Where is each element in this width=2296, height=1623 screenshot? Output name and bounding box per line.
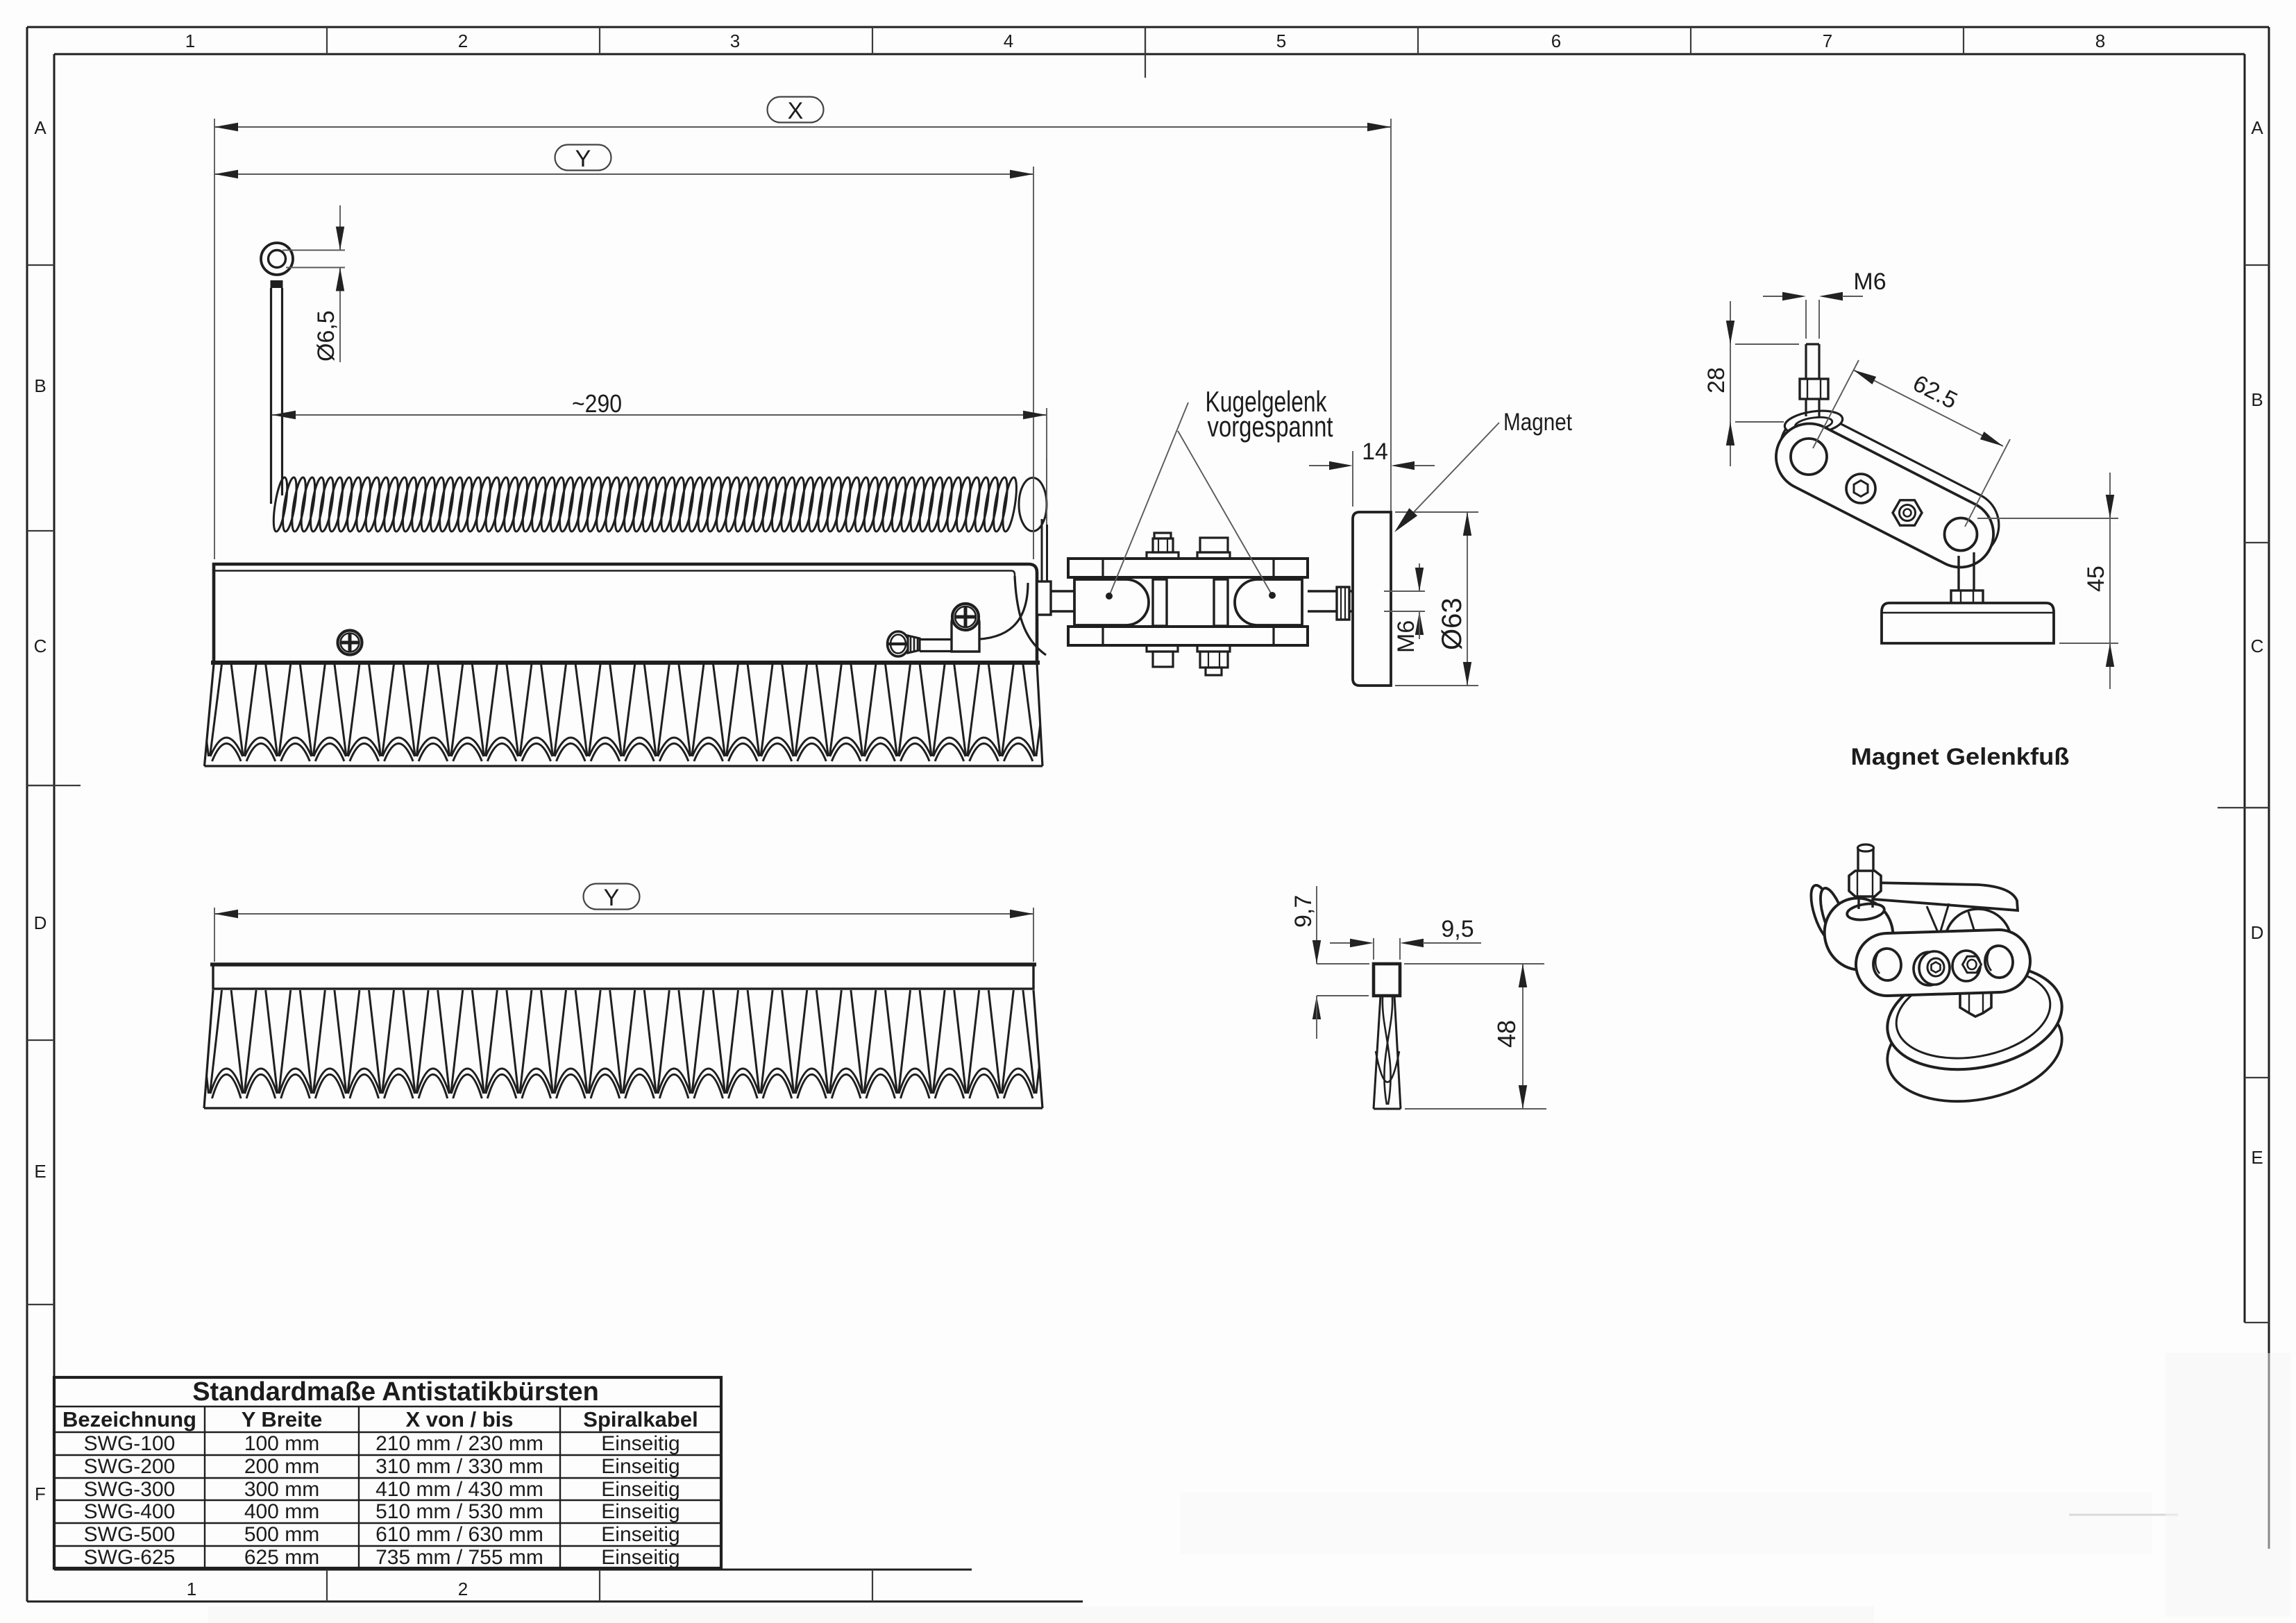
svg-text:Spiralkabel: Spiralkabel — [583, 1407, 698, 1431]
svg-text:Y Breite: Y Breite — [242, 1407, 323, 1431]
svg-text:Y: Y — [604, 885, 620, 911]
svg-text:M6: M6 — [1393, 620, 1419, 653]
svg-text:Einseitig: Einseitig — [601, 1546, 679, 1569]
svg-text:8: 8 — [2095, 31, 2105, 51]
svg-text:SWG-300: SWG-300 — [84, 1478, 176, 1501]
svg-text:Einseitig: Einseitig — [601, 1500, 679, 1523]
svg-text:B: B — [34, 375, 46, 396]
svg-text:28: 28 — [1703, 367, 1730, 393]
svg-text:2: 2 — [458, 31, 468, 51]
svg-text:9,7: 9,7 — [1290, 895, 1317, 928]
svg-text:Einseitig: Einseitig — [601, 1523, 679, 1546]
svg-text:400 mm: 400 mm — [244, 1500, 319, 1523]
svg-text:1: 1 — [185, 31, 195, 51]
svg-text:C: C — [34, 636, 47, 656]
svg-text:X: X — [788, 98, 804, 124]
svg-text:9,5: 9,5 — [1441, 916, 1474, 942]
svg-text:Magnet: Magnet — [1503, 409, 1572, 436]
svg-text:Y: Y — [575, 146, 591, 172]
svg-text:X von / bis: X von / bis — [405, 1407, 513, 1431]
svg-text:~290: ~290 — [572, 389, 622, 418]
svg-text:1: 1 — [187, 1579, 196, 1599]
svg-text:Bezeichnung: Bezeichnung — [62, 1407, 196, 1431]
svg-text:4: 4 — [1004, 31, 1013, 51]
svg-text:C: C — [2251, 636, 2264, 656]
svg-text:6: 6 — [1551, 31, 1561, 51]
svg-text:E: E — [34, 1161, 46, 1182]
svg-text:510 mm / 530 mm: 510 mm / 530 mm — [375, 1500, 543, 1523]
svg-text:Standardmaße Antistatikbürsten: Standardmaße Antistatikbürsten — [192, 1377, 599, 1407]
svg-text:SWG-100: SWG-100 — [84, 1432, 176, 1455]
svg-text:Einseitig: Einseitig — [601, 1432, 679, 1455]
svg-text:48: 48 — [1492, 1020, 1521, 1048]
svg-text:Magnet Gelenkfuß: Magnet Gelenkfuß — [1851, 744, 2070, 770]
svg-text:E: E — [2251, 1147, 2263, 1168]
svg-text:vorgespannt: vorgespannt — [1208, 410, 1333, 443]
svg-text:3: 3 — [730, 31, 740, 51]
svg-text:A: A — [2251, 117, 2263, 138]
svg-text:7: 7 — [1823, 31, 1832, 51]
svg-text:M6: M6 — [1853, 269, 1886, 295]
svg-text:2: 2 — [458, 1579, 468, 1599]
svg-text:Ø6,5: Ø6,5 — [313, 310, 339, 362]
svg-text:SWG-500: SWG-500 — [84, 1523, 176, 1546]
svg-text:D: D — [2251, 922, 2264, 943]
svg-text:625 mm: 625 mm — [244, 1546, 319, 1569]
svg-text:735 mm / 755 mm: 735 mm / 755 mm — [375, 1546, 543, 1569]
svg-text:Einseitig: Einseitig — [601, 1478, 679, 1501]
svg-text:D: D — [34, 912, 47, 933]
svg-text:45: 45 — [2083, 566, 2109, 592]
svg-text:500 mm: 500 mm — [244, 1523, 319, 1546]
svg-text:F: F — [35, 1484, 46, 1504]
svg-text:5: 5 — [1276, 31, 1286, 51]
svg-text:100 mm: 100 mm — [244, 1432, 319, 1455]
svg-text:SWG-200: SWG-200 — [84, 1455, 176, 1478]
svg-text:SWG-625: SWG-625 — [84, 1546, 176, 1569]
svg-text:610 mm / 630 mm: 610 mm / 630 mm — [375, 1523, 543, 1546]
svg-text:310 mm / 330 mm: 310 mm / 330 mm — [375, 1455, 543, 1478]
svg-text:A: A — [34, 117, 47, 138]
svg-text:Ø63: Ø63 — [1437, 597, 1467, 650]
svg-text:300 mm: 300 mm — [244, 1478, 319, 1501]
svg-text:410 mm / 430 mm: 410 mm / 430 mm — [375, 1478, 543, 1501]
svg-text:Einseitig: Einseitig — [601, 1455, 679, 1478]
svg-text:14: 14 — [1362, 439, 1388, 465]
svg-text:SWG-400: SWG-400 — [84, 1500, 176, 1523]
svg-text:200 mm: 200 mm — [244, 1455, 319, 1478]
svg-text:B: B — [2251, 389, 2263, 410]
svg-text:210 mm / 230 mm: 210 mm / 230 mm — [375, 1432, 543, 1455]
